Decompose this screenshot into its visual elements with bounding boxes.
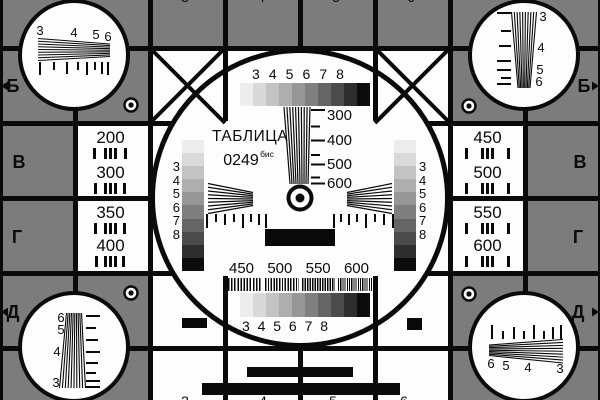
- registration-bullseye-dot: [128, 102, 133, 107]
- grayscale-step: [344, 293, 357, 317]
- grayscale-staircase-top: [240, 83, 370, 106]
- grayscale-step: [357, 293, 370, 317]
- br-wedge-label: 6: [485, 357, 497, 370]
- grayscale-step: [394, 166, 416, 179]
- frequency-labels-row: 450500550600: [229, 261, 369, 276]
- row-letter-right-v: В: [573, 153, 587, 171]
- row-letter-left-v: В: [12, 153, 26, 171]
- grayscale-step: [182, 140, 204, 153]
- grayscale-step: [394, 219, 416, 232]
- grayscale-step: [240, 293, 253, 317]
- stair-label-left: 5: [165, 187, 180, 200]
- frequency-band-550: [302, 278, 336, 291]
- resolution-value-400: 400: [88, 237, 133, 254]
- test-card-0249: ТАБЛИЦА 0249 бис 345678 345678 3 4 5 6 7…: [0, 0, 600, 400]
- wedge-scale-400: 400: [327, 133, 361, 148]
- grayscale-step: [182, 179, 204, 192]
- resolution-ticks-550: [465, 223, 510, 234]
- clipped-digit-top: 6: [404, 0, 418, 4]
- resolution-ticks-200: [93, 148, 127, 159]
- clipped-digit-bottom: 3: [178, 394, 192, 400]
- br-wedge-label: 5: [500, 359, 512, 372]
- bottom-bar-short: [247, 367, 353, 377]
- br-wedge-label: 4: [522, 361, 534, 374]
- resolution-value-550: 550: [465, 204, 510, 221]
- grayscale-step: [292, 293, 305, 317]
- resolution-ticks-400: [95, 256, 125, 267]
- corner-circle-bottom-left: [18, 291, 130, 400]
- grayscale-step: [182, 166, 204, 179]
- tl-wedge-label: 6: [102, 30, 114, 43]
- grayscale-step: [182, 245, 204, 258]
- grayscale-step: [182, 153, 204, 166]
- card-title: ТАБЛИЦА: [210, 129, 290, 145]
- clipped-digit-bottom: 4: [256, 394, 270, 400]
- resolution-ticks-600: [465, 256, 510, 267]
- tr-wedge-label: 6: [533, 75, 545, 88]
- registration-bullseye-dot: [466, 103, 471, 108]
- grayscale-step: [253, 83, 266, 106]
- row-letter-right-g: Г: [571, 228, 585, 246]
- clipped-digit-top: 5: [329, 0, 343, 4]
- grayscale-step: [394, 232, 416, 245]
- frequency-band-500: [265, 278, 299, 291]
- stair-label-right: 3: [419, 160, 434, 173]
- br-wedge-label: 3: [554, 362, 566, 375]
- side-marker-right: [407, 318, 422, 330]
- grayscale-step: [182, 192, 204, 205]
- grayscale-staircase-bottom: [240, 293, 370, 317]
- grayscale-staircase-right: [394, 140, 416, 271]
- row-letter-right-d: Д: [571, 303, 585, 321]
- grayscale-labels-top: 345678: [252, 67, 344, 81]
- center-reference-bar: [265, 229, 335, 246]
- registration-bullseye: [125, 287, 138, 300]
- grayscale-staircase-left: [182, 140, 204, 271]
- grayscale-step: [357, 83, 370, 106]
- registration-bullseye: [125, 99, 138, 112]
- card-number-suffix: бис: [259, 150, 275, 159]
- resolution-ticks-300: [94, 183, 126, 194]
- clipped-digit-bottom: 6: [397, 394, 411, 400]
- clipped-digit-top: 4: [254, 0, 268, 4]
- registration-bullseye: [463, 288, 476, 301]
- resolution-value-600: 600: [465, 237, 510, 254]
- tr-wedge-label: 3: [537, 10, 549, 23]
- bl-wedge-label: 3: [50, 376, 62, 389]
- stair-label-right: 7: [419, 214, 434, 227]
- corner-circle-bottom-right: [468, 291, 580, 400]
- grayscale-step: [266, 83, 279, 106]
- grayscale-step: [394, 258, 416, 271]
- tl-wedge-label: 5: [90, 28, 102, 41]
- grayscale-step: [305, 83, 318, 106]
- tl-wedge-label: 3: [34, 24, 46, 37]
- resolution-ticks-350: [94, 223, 126, 234]
- wedge-scale-300: 300: [327, 108, 361, 123]
- tr-wedge-label: 4: [535, 41, 547, 54]
- grayscale-step: [182, 205, 204, 218]
- grayscale-step: [394, 245, 416, 258]
- grayscale-step: [344, 83, 357, 106]
- grayscale-step: [240, 83, 253, 106]
- corner-circle-top-left: [18, 0, 130, 111]
- grayscale-step: [182, 232, 204, 245]
- grayscale-step: [394, 179, 416, 192]
- resolution-value-350: 350: [88, 204, 133, 221]
- bl-wedge-label: 4: [51, 345, 63, 358]
- row-letter-left-g: Г: [10, 228, 24, 246]
- frequency-band-450: [228, 278, 262, 291]
- stair-label-left: 3: [165, 160, 180, 173]
- grayscale-step: [331, 293, 344, 317]
- grayscale-step: [279, 83, 292, 106]
- stair-label-left: 8: [165, 228, 180, 241]
- registration-bullseye-dot: [128, 290, 133, 295]
- grayscale-step: [266, 293, 279, 317]
- bl-wedge-label: 5: [55, 323, 67, 336]
- corner-circle-top-right: [468, 0, 580, 111]
- resolution-value-450: 450: [465, 129, 510, 146]
- grayscale-step: [394, 192, 416, 205]
- wedge-scale-500: 500: [327, 157, 361, 172]
- resolution-value-200: 200: [88, 129, 133, 146]
- grayscale-step: [394, 205, 416, 218]
- row-letter-left-b: Б: [6, 77, 20, 95]
- grayscale-step: [253, 293, 266, 317]
- tl-wedge-label: 4: [68, 26, 80, 39]
- grayscale-step: [292, 83, 305, 106]
- side-marker-left: [182, 318, 207, 328]
- frequency-burst-strip: [228, 278, 372, 291]
- registration-bullseye: [463, 100, 476, 113]
- resolution-value-300: 300: [88, 164, 133, 181]
- stair-label-right: 8: [419, 228, 434, 241]
- frequency-band-600: [338, 278, 372, 291]
- grayscale-step: [279, 293, 292, 317]
- grayscale-labels-bottom: 345678: [242, 319, 328, 333]
- grayscale-step: [182, 258, 204, 271]
- card-number: 0249: [222, 153, 260, 169]
- grayscale-step: [182, 219, 204, 232]
- grayscale-step: [318, 293, 331, 317]
- clipped-digit-bottom: 5: [326, 394, 340, 400]
- grayscale-step: [331, 83, 344, 106]
- registration-bullseye-dot: [466, 291, 471, 296]
- resolution-ticks-450: [465, 148, 510, 159]
- grayscale-step: [394, 140, 416, 153]
- wedge-scale-600: 600: [327, 176, 361, 191]
- grayscale-step: [318, 83, 331, 106]
- resolution-value-500: 500: [465, 164, 510, 181]
- bottom-bar-long: [202, 383, 400, 395]
- resolution-ticks-500: [465, 183, 510, 194]
- grayscale-step: [394, 153, 416, 166]
- stair-label-right: 5: [419, 187, 434, 200]
- stair-label-left: 7: [165, 214, 180, 227]
- grayscale-step: [305, 293, 318, 317]
- row-letter-left-d: Д: [6, 303, 20, 321]
- clipped-digit-top: 3: [178, 0, 192, 4]
- row-letter-right-b: Б: [577, 77, 591, 95]
